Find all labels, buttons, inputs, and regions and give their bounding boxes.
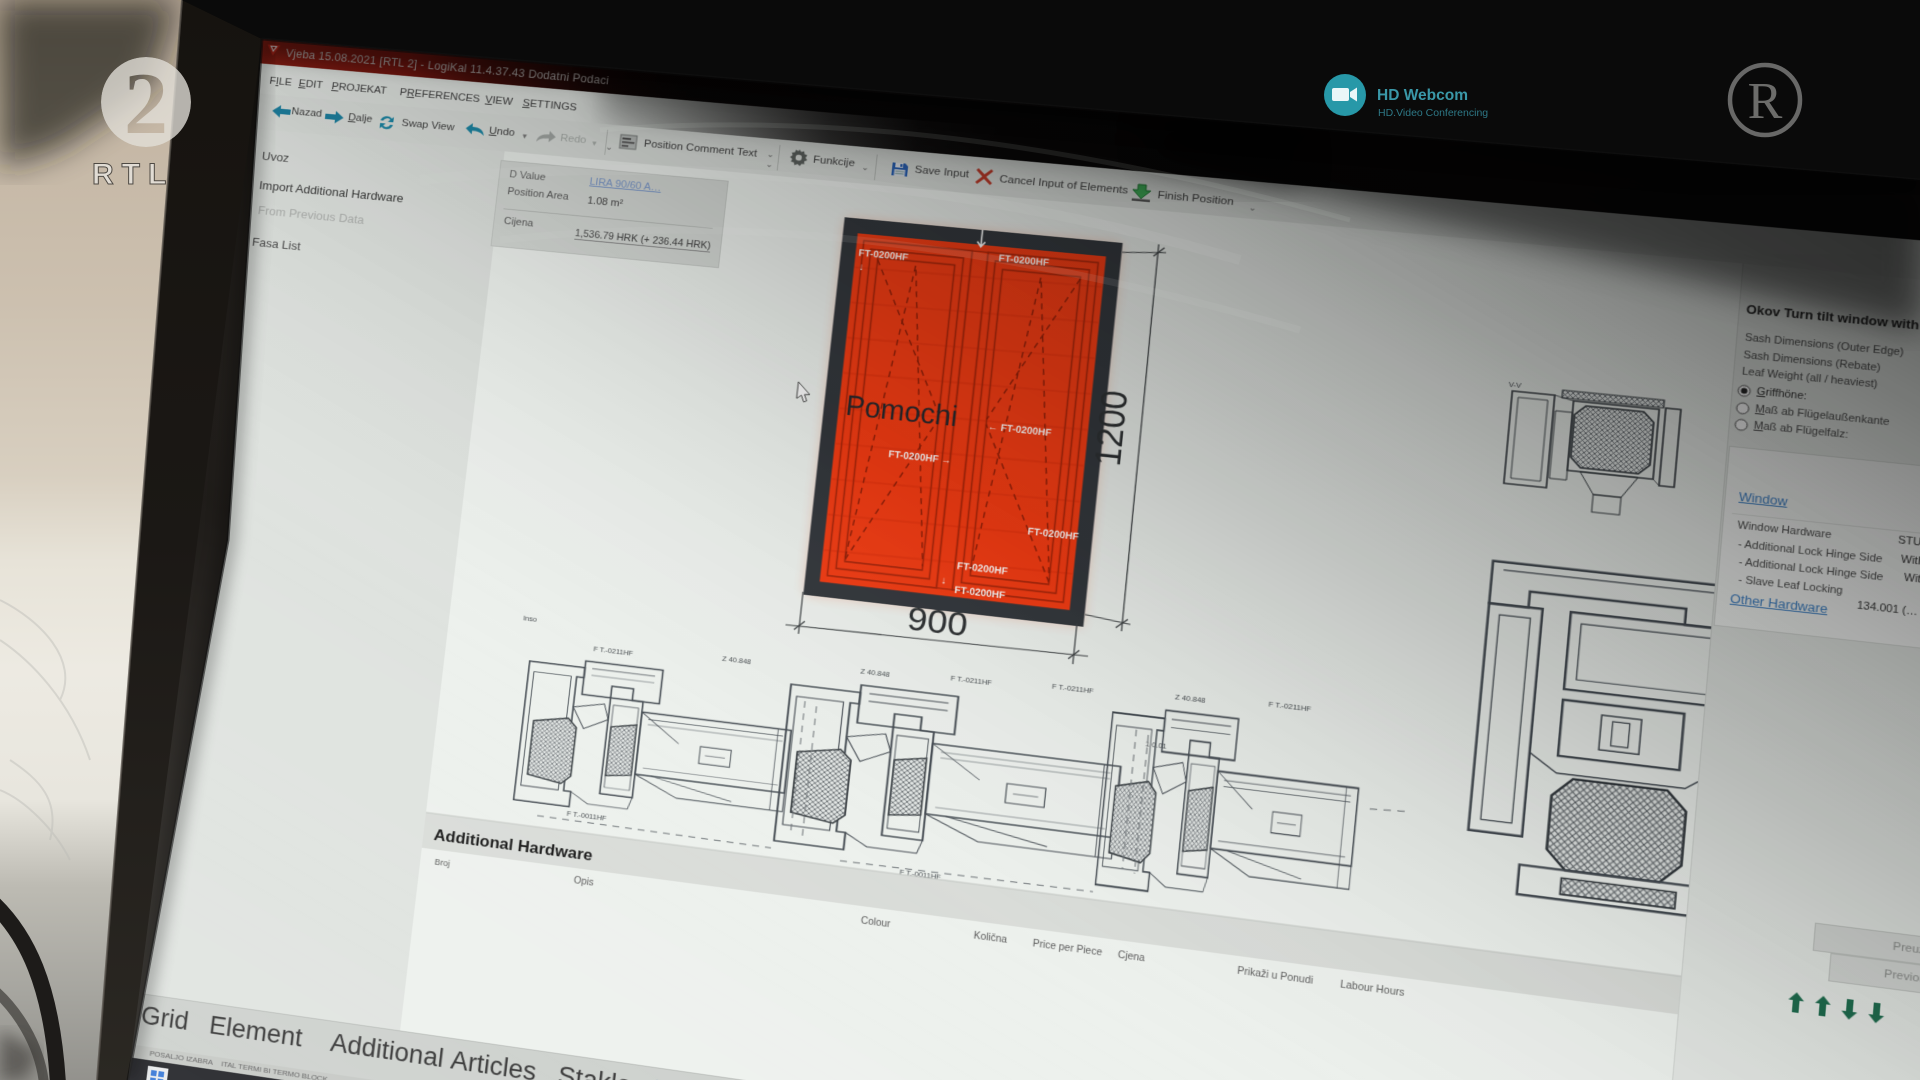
svg-text:RTL: RTL xyxy=(92,158,174,191)
svg-text:HD.Video Conferencing: HD.Video Conferencing xyxy=(1378,107,1488,119)
svg-text:HD Webcom: HD Webcom xyxy=(1377,87,1468,104)
svg-text:R: R xyxy=(1748,73,1783,130)
